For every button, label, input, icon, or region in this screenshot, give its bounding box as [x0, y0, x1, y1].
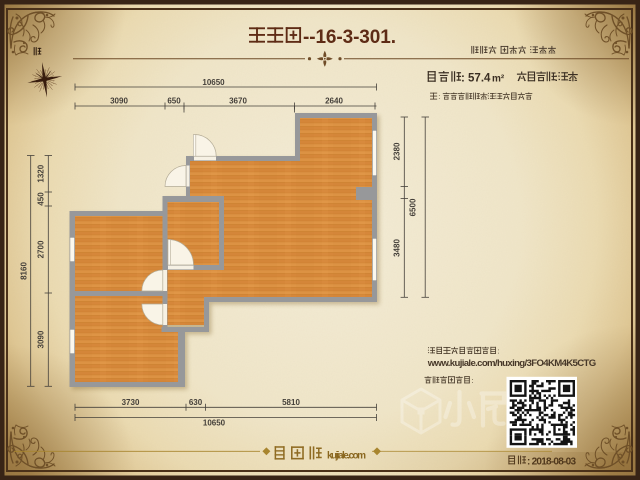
svg-text:m²: m²: [492, 73, 505, 84]
svg-text:10650: 10650: [202, 78, 225, 87]
svg-text:2380: 2380: [393, 142, 402, 160]
svg-text:kujiale.com: kujiale.com: [327, 450, 366, 461]
svg-text:3090: 3090: [37, 330, 46, 348]
svg-text:www.kujiale.com/huxing/3FO4KM4: www.kujiale.com/huxing/3FO4KM4K5CTG: [427, 358, 597, 369]
svg-text:8160: 8160: [20, 262, 29, 280]
svg-text:2700: 2700: [37, 240, 46, 258]
svg-text:3670: 3670: [229, 97, 247, 106]
svg-text:3730: 3730: [122, 398, 140, 407]
svg-text:450: 450: [37, 192, 46, 206]
svg-text:5810: 5810: [282, 398, 300, 407]
svg-text:10650: 10650: [203, 419, 226, 428]
svg-text:2640: 2640: [325, 97, 343, 106]
svg-text:--16-3-301.: --16-3-301.: [303, 27, 396, 48]
svg-text:3090: 3090: [110, 97, 128, 106]
svg-text::: :: [438, 92, 440, 101]
svg-text:: 2018-08-03: : 2018-08-03: [527, 456, 576, 467]
svg-text:630: 630: [189, 398, 203, 407]
svg-text::: :: [555, 72, 559, 84]
svg-text:1320: 1320: [37, 164, 46, 182]
svg-text:650: 650: [167, 97, 181, 106]
svg-text:: 57.4: : 57.4: [461, 72, 491, 84]
svg-text:3480: 3480: [393, 239, 402, 257]
svg-text::: :: [472, 376, 474, 385]
svg-text::: :: [498, 346, 500, 355]
svg-text:6500: 6500: [409, 198, 418, 216]
